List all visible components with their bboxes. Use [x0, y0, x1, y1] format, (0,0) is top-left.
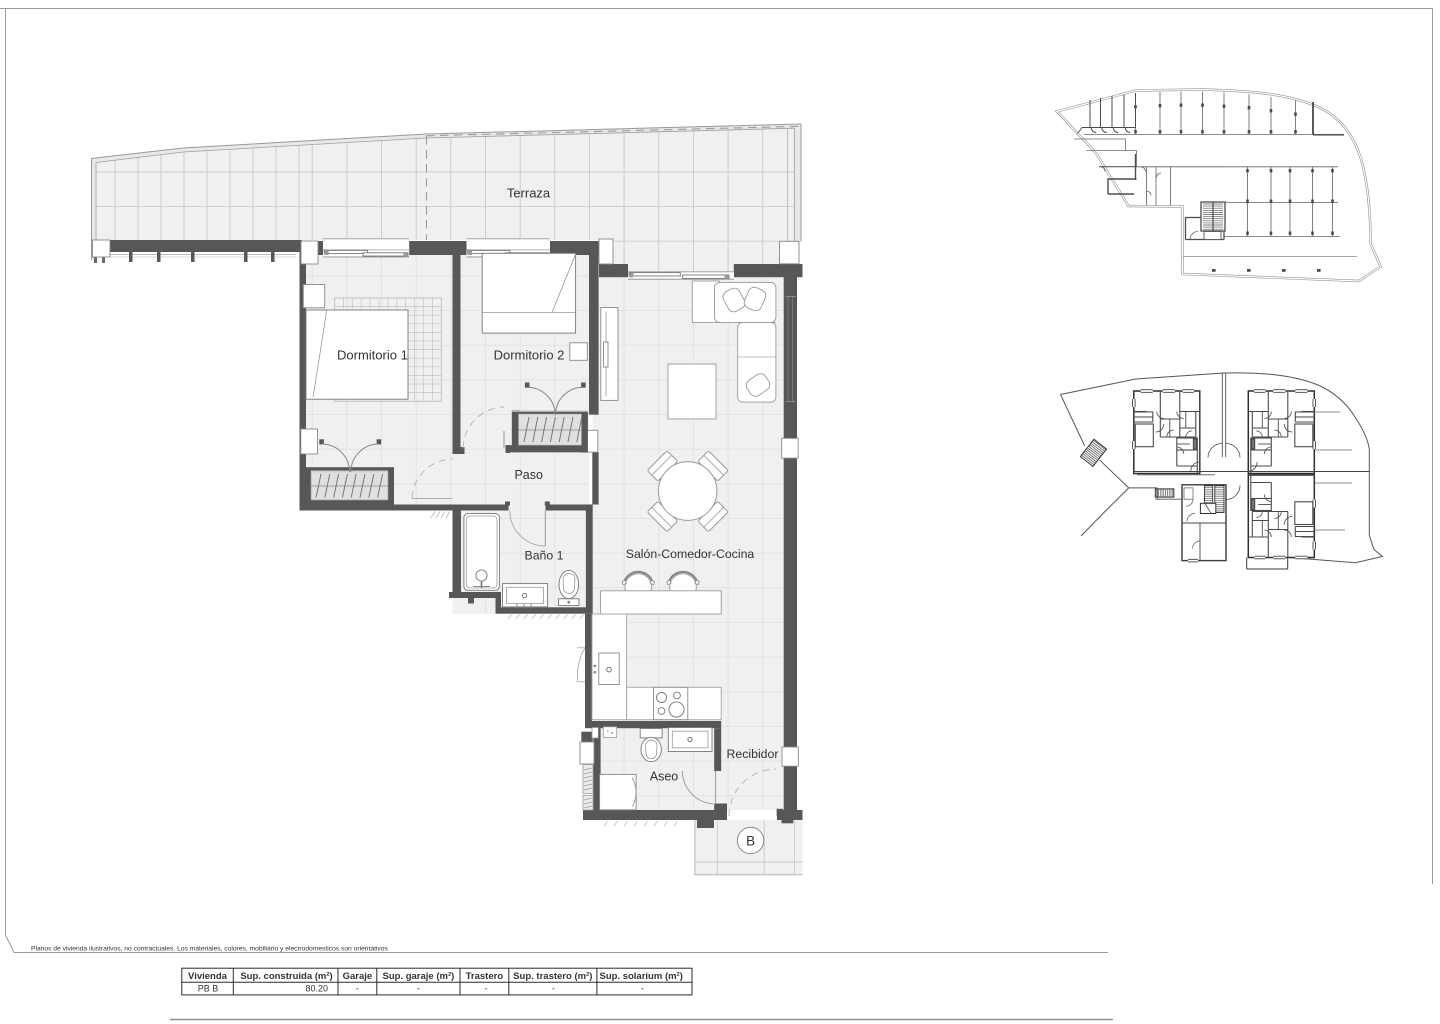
svg-text:Garaje: Garaje — [343, 971, 373, 982]
svg-text:Sup. garaje (m²): Sup. garaje (m²) — [383, 971, 455, 982]
svg-text:Dormitorio 2: Dormitorio 2 — [494, 348, 565, 363]
svg-text:Baño 1: Baño 1 — [525, 549, 564, 563]
svg-text:-: - — [641, 984, 644, 994]
svg-text:B: B — [746, 833, 755, 848]
svg-text:-: - — [552, 984, 555, 994]
svg-text:-: - — [356, 984, 359, 994]
svg-text:Salón-Comedor-Cocina: Salón-Comedor-Cocina — [626, 547, 755, 561]
svg-text:Sup. solarium (m²): Sup. solarium (m²) — [599, 971, 682, 982]
svg-text:Recibidor: Recibidor — [727, 747, 779, 761]
svg-text:Sup. construida (m²): Sup. construida (m²) — [240, 971, 332, 982]
svg-text:Terraza: Terraza — [507, 186, 551, 201]
svg-text:80.20: 80.20 — [306, 984, 329, 994]
svg-text:-: - — [417, 984, 420, 994]
svg-text:Vivienda: Vivienda — [188, 971, 228, 982]
svg-text:-: - — [485, 984, 488, 994]
svg-text:PB B: PB B — [198, 984, 219, 994]
svg-text:Dormitorio 1: Dormitorio 1 — [337, 348, 408, 363]
svg-text:Trastero: Trastero — [466, 971, 504, 982]
svg-text:Paso: Paso — [514, 468, 543, 482]
svg-text:Sup. trastero (m²): Sup. trastero (m²) — [513, 971, 592, 982]
svg-text:Planos de vivienda ilustrativo: Planos de vivienda ilustrativos, no cont… — [31, 946, 388, 953]
svg-text:Aseo: Aseo — [650, 770, 679, 784]
